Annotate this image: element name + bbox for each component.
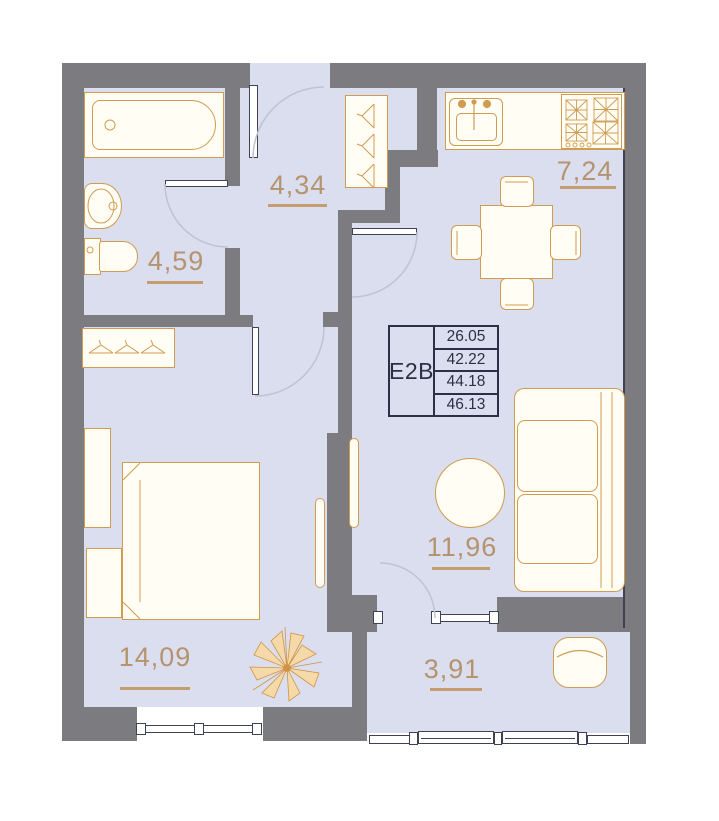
unit-stat-row: 46.13 (435, 393, 497, 416)
bathtub-drain (105, 120, 115, 130)
living-door-arc (352, 232, 417, 297)
room-label-living: 11,96 (427, 534, 498, 561)
floor-plan: 4,34 4,59 7,24 11,96 14,09 3,91 E2B 26.0… (0, 0, 719, 821)
armchair-back-line (557, 651, 603, 658)
unit-stat-row: 42.22 (435, 348, 497, 371)
bathroom-door-arc (165, 184, 228, 247)
sink-basin (88, 189, 114, 223)
unit-info-box: E2B 26.05 42.22 44.18 46.13 (388, 325, 499, 417)
unit-stats: 26.05 42.22 44.18 46.13 (433, 327, 497, 415)
bathroom-fixture-details (87, 120, 117, 253)
unit-code: E2B (390, 327, 433, 415)
chair-back-lines (457, 182, 576, 305)
sink-faucet (109, 202, 117, 210)
room-label-bedroom: 14,09 (119, 644, 192, 671)
room-label-underline-kitchen (560, 186, 616, 189)
room-label-kitchen: 7,24 (557, 158, 614, 185)
room-label-balcony: 3,91 (424, 656, 481, 683)
entrance-door-arc (253, 87, 324, 158)
decor-overlay (0, 0, 719, 821)
plant-icon (250, 627, 322, 701)
room-label-underline-bedroom (120, 687, 190, 690)
room-label-hallway: 4,34 (270, 172, 327, 199)
unit-stat-row: 44.18 (435, 370, 497, 393)
room-label-underline-balcony (430, 688, 482, 691)
room-label-underline-bathroom (147, 281, 203, 284)
coat-hangers-wardrobe (89, 340, 165, 353)
sofa-back-lines (601, 392, 612, 588)
balcony-door-arc (380, 563, 435, 618)
room-label-underline-living (432, 567, 490, 570)
coat-hangers-hallway (357, 104, 374, 188)
stove-burners (566, 98, 618, 147)
unit-stat-row: 26.05 (435, 327, 497, 348)
bed-blanket-fold (123, 463, 140, 619)
kitchen-faucet-icon (459, 100, 491, 130)
toilet-button (87, 247, 93, 253)
room-label-underline-hallway (268, 204, 327, 207)
bedroom-door-arc (255, 327, 324, 396)
room-label-bathroom: 4,59 (148, 248, 205, 275)
